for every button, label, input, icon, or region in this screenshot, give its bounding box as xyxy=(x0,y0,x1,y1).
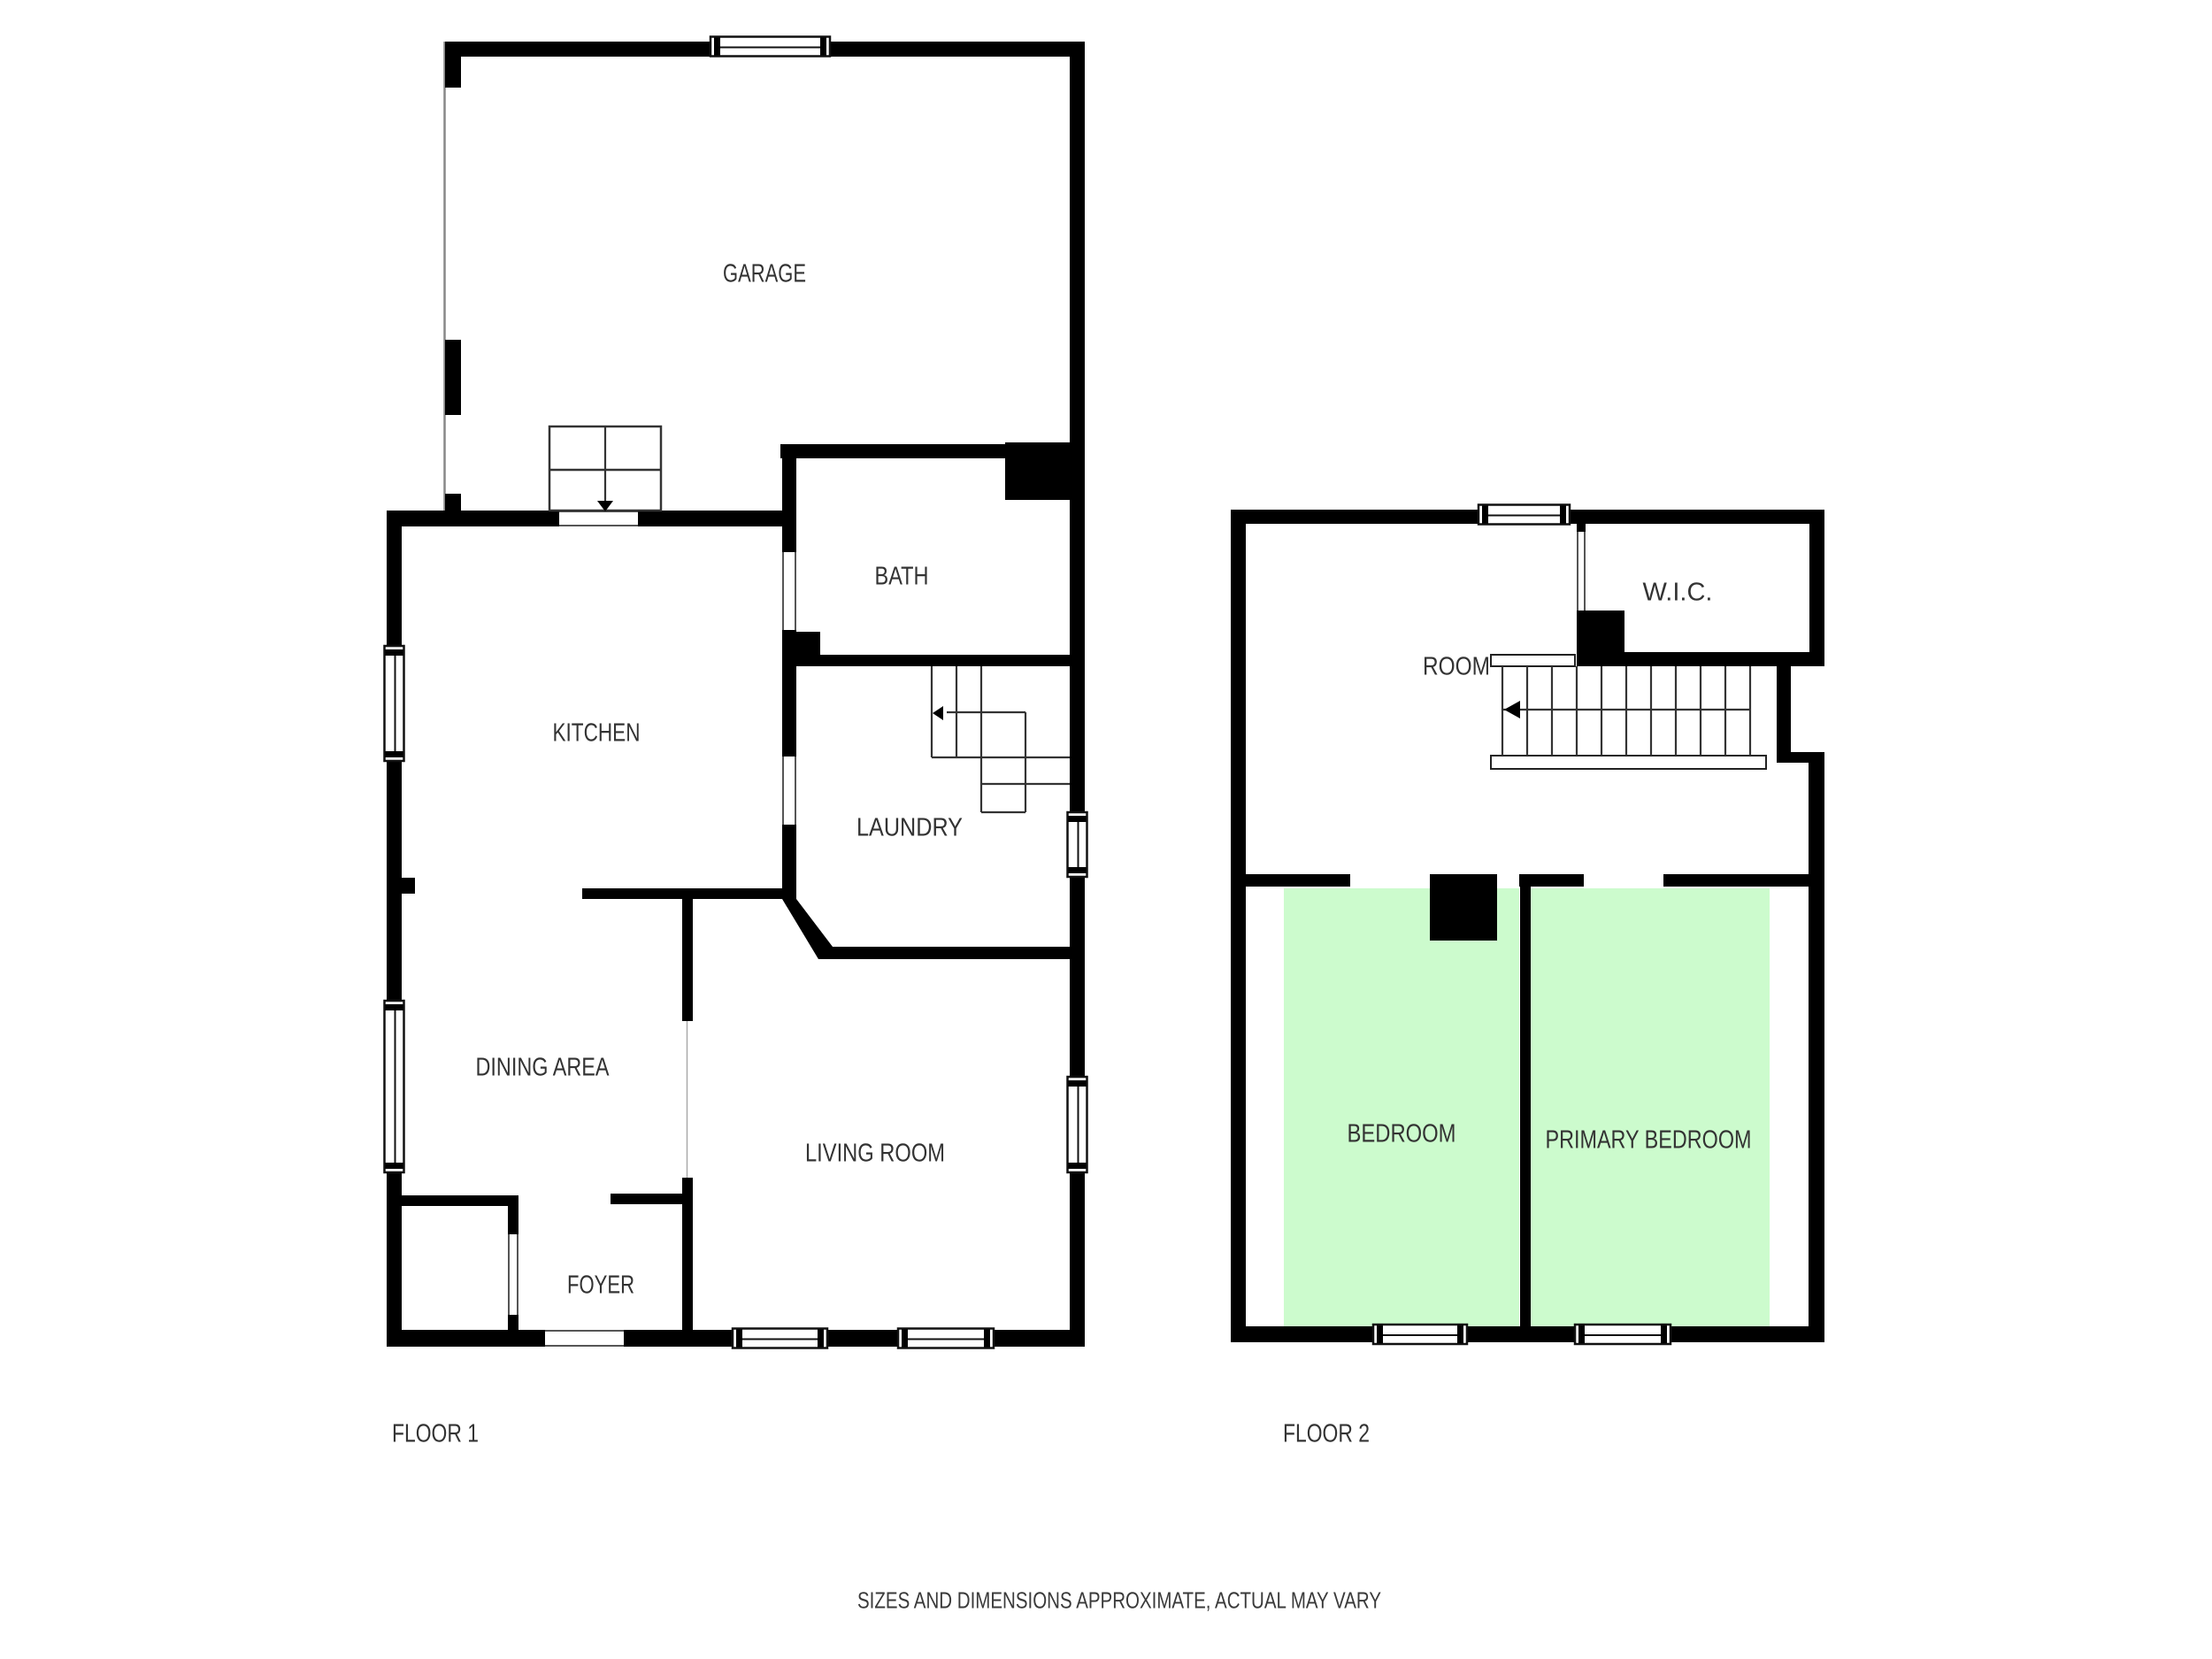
svg-text:FLOOR 2: FLOOR 2 xyxy=(1283,1419,1370,1448)
svg-text:KITCHEN: KITCHEN xyxy=(553,718,641,747)
svg-text:FLOOR 1: FLOOR 1 xyxy=(392,1419,479,1448)
svg-text:SIZES AND DIMENSIONS APPROXIMA: SIZES AND DIMENSIONS APPROXIMATE, ACTUAL… xyxy=(857,1586,1381,1613)
svg-text:BEDROOM: BEDROOM xyxy=(1348,1119,1456,1148)
svg-text:GARAGE: GARAGE xyxy=(723,259,806,288)
svg-text:W.I.C.: W.I.C. xyxy=(1643,578,1713,606)
svg-text:LAUNDRY: LAUNDRY xyxy=(856,813,963,841)
svg-text:BATH: BATH xyxy=(875,562,929,590)
svg-text:ROOM: ROOM xyxy=(1423,652,1490,680)
svg-text:LIVING ROOM: LIVING ROOM xyxy=(805,1139,945,1167)
svg-text:FOYER: FOYER xyxy=(567,1271,634,1299)
svg-text:PRIMARY BEDROOM: PRIMARY BEDROOM xyxy=(1546,1125,1752,1154)
svg-text:DINING AREA: DINING AREA xyxy=(476,1053,611,1081)
